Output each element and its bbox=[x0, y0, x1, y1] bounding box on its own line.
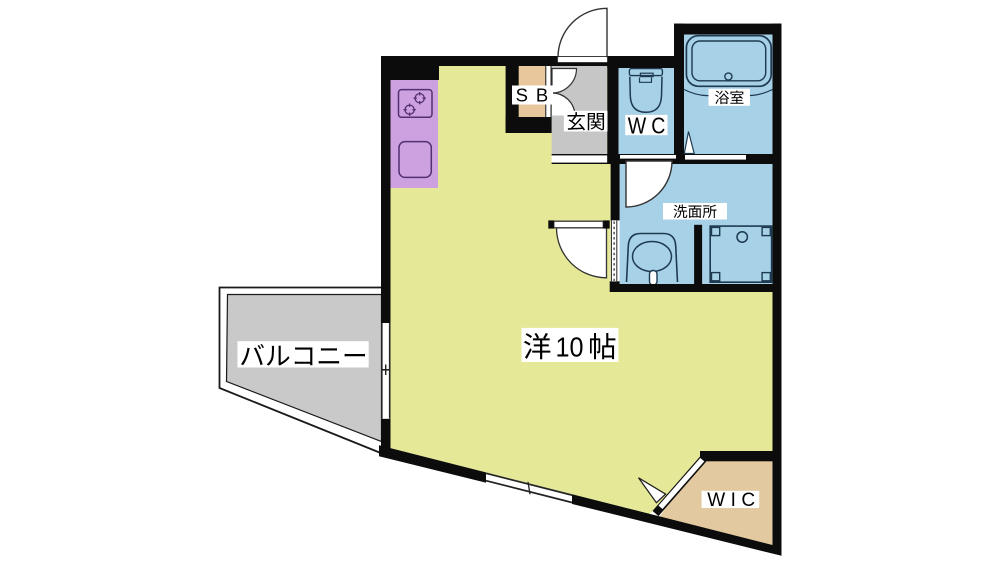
svg-text:WC: WC bbox=[628, 113, 671, 139]
svg-text:SB: SB bbox=[516, 85, 557, 106]
svg-text:WIC: WIC bbox=[707, 490, 760, 511]
svg-text:10: 10 bbox=[556, 332, 584, 363]
